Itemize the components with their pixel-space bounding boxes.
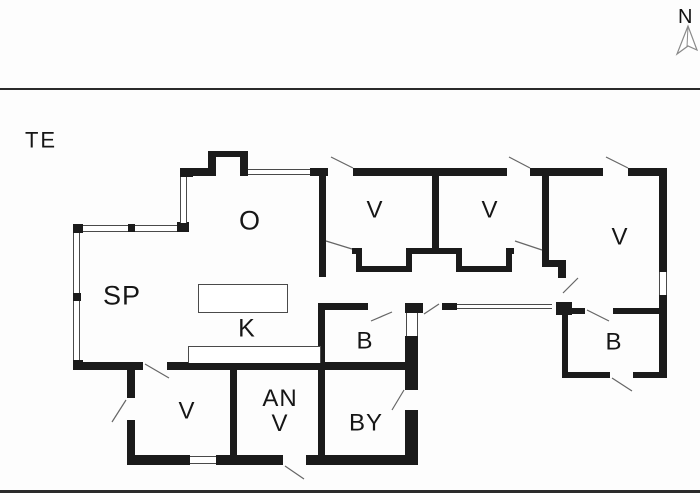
door-swing-line: [112, 400, 126, 422]
door-swing-line: [606, 157, 628, 168]
room-label-bath1: B: [356, 329, 373, 354]
room-label-bedroom4: V: [178, 399, 195, 424]
room-label-utility: BY: [349, 411, 383, 436]
room-label-dining: SP: [103, 284, 141, 309]
floor-plan: N TE O SP K V V V B B BY V AN V: [0, 0, 700, 500]
door-swing-line: [509, 157, 530, 168]
door-swing-line: [424, 304, 439, 314]
door-swing-line: [371, 312, 392, 321]
room-label-bath2: B: [605, 330, 622, 355]
door-swing-line: [563, 278, 578, 293]
room-label-annex-line2: V: [271, 410, 288, 437]
door-swing-line: [515, 241, 542, 250]
door-swing-line: [587, 310, 609, 321]
room-label-annex: AN V: [262, 386, 297, 436]
room-label-annex-line1: AN: [262, 385, 297, 412]
door-swing-line: [145, 364, 169, 378]
door-swing-line: [331, 157, 353, 168]
door-swing-line: [285, 466, 304, 479]
door-swing-line: [392, 390, 404, 410]
room-label-kitchen: K: [238, 317, 256, 342]
room-label-living: O: [239, 209, 261, 234]
room-label-bedroom2: V: [481, 198, 498, 223]
room-label-bedroom1: V: [366, 198, 383, 223]
kitchen-island: [198, 284, 288, 313]
kitchen-counter: [188, 346, 321, 363]
door-swing-line: [612, 378, 632, 391]
room-label-bedroom3: V: [611, 225, 628, 250]
door-swing-line: [326, 241, 352, 249]
site-label: TE: [25, 128, 57, 153]
